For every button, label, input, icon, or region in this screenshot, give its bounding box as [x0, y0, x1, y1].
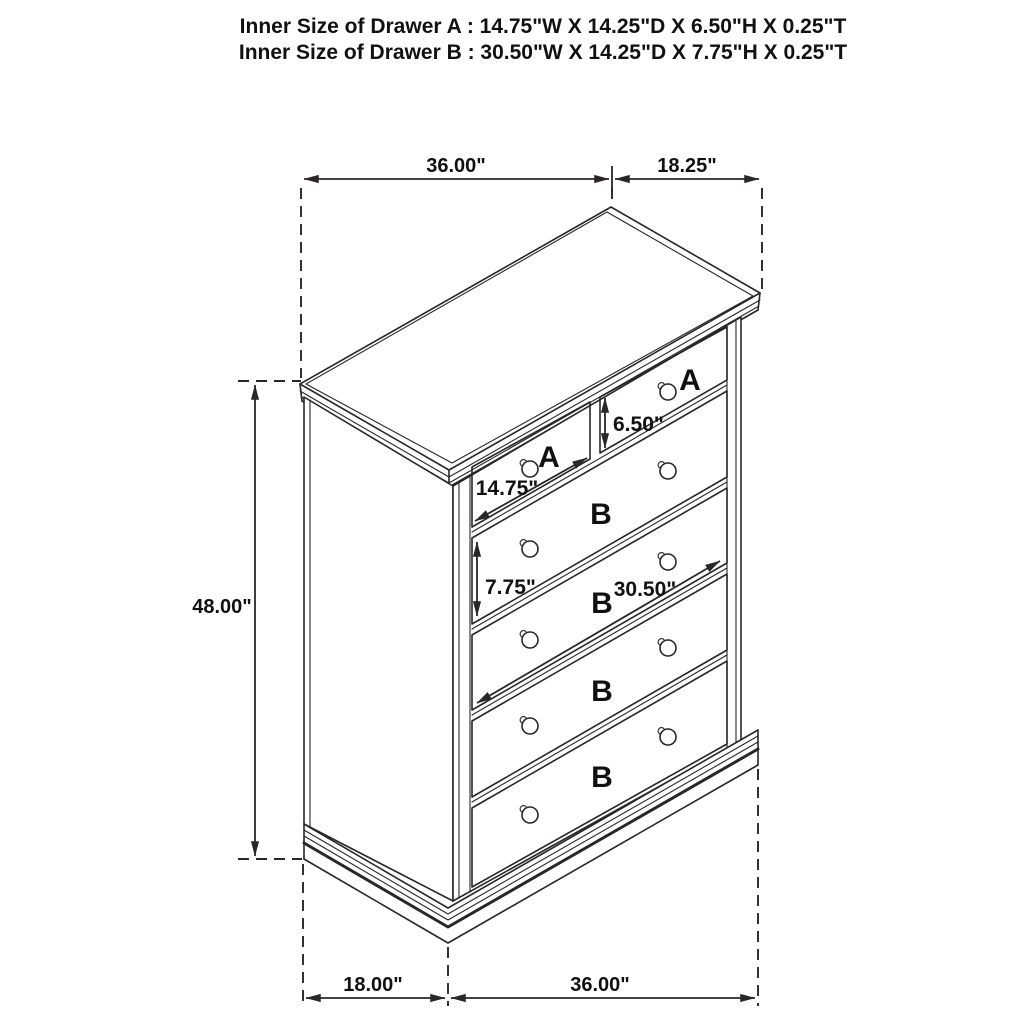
title-line-1: Inner Size of Drawer A : 14.75"W X 14.25…: [240, 15, 847, 38]
bottom-depth-dimension: 18.00": [306, 974, 445, 998]
title-line-2: Inner Size of Drawer B : 30.50"W X 14.25…: [239, 41, 847, 64]
drawer-b-height-label: 7.75": [485, 576, 536, 599]
drawer-a-right-letter: A: [679, 364, 701, 397]
dresser-dimension-diagram: Inner Size of Drawer A : 14.75"W X 14.25…: [0, 0, 1024, 1024]
top-depth-label: 18.25": [657, 155, 717, 177]
drawer-a-width-label: 14.75": [476, 477, 539, 500]
drawer-b1-letter: B: [590, 498, 612, 531]
drawer-b2-letter: B: [591, 587, 613, 620]
drawer-a-left-letter: A: [538, 441, 560, 474]
drawer-a-height-label: 6.50": [613, 413, 664, 436]
drawer-b3-letter: B: [591, 675, 613, 708]
bottom-depth-label: 18.00": [343, 974, 403, 996]
height-dimension: 48.00": [192, 385, 255, 856]
top-width-dimension: 36.00": [304, 155, 612, 192]
side-panel: [304, 397, 453, 901]
drawer-b4-letter: B: [591, 761, 613, 794]
dresser-dimension-diagram-page: Inner Size of Drawer A : 14.75"W X 14.25…: [0, 0, 1024, 1024]
height-label: 48.00": [192, 596, 252, 618]
bottom-width-dimension: 36.00": [451, 974, 755, 998]
top-width-label: 36.00": [426, 155, 486, 177]
bottom-width-label: 36.00": [570, 974, 630, 996]
drawer-b-width-label: 30.50": [614, 578, 677, 601]
top-depth-dimension: 18.25": [615, 155, 759, 179]
